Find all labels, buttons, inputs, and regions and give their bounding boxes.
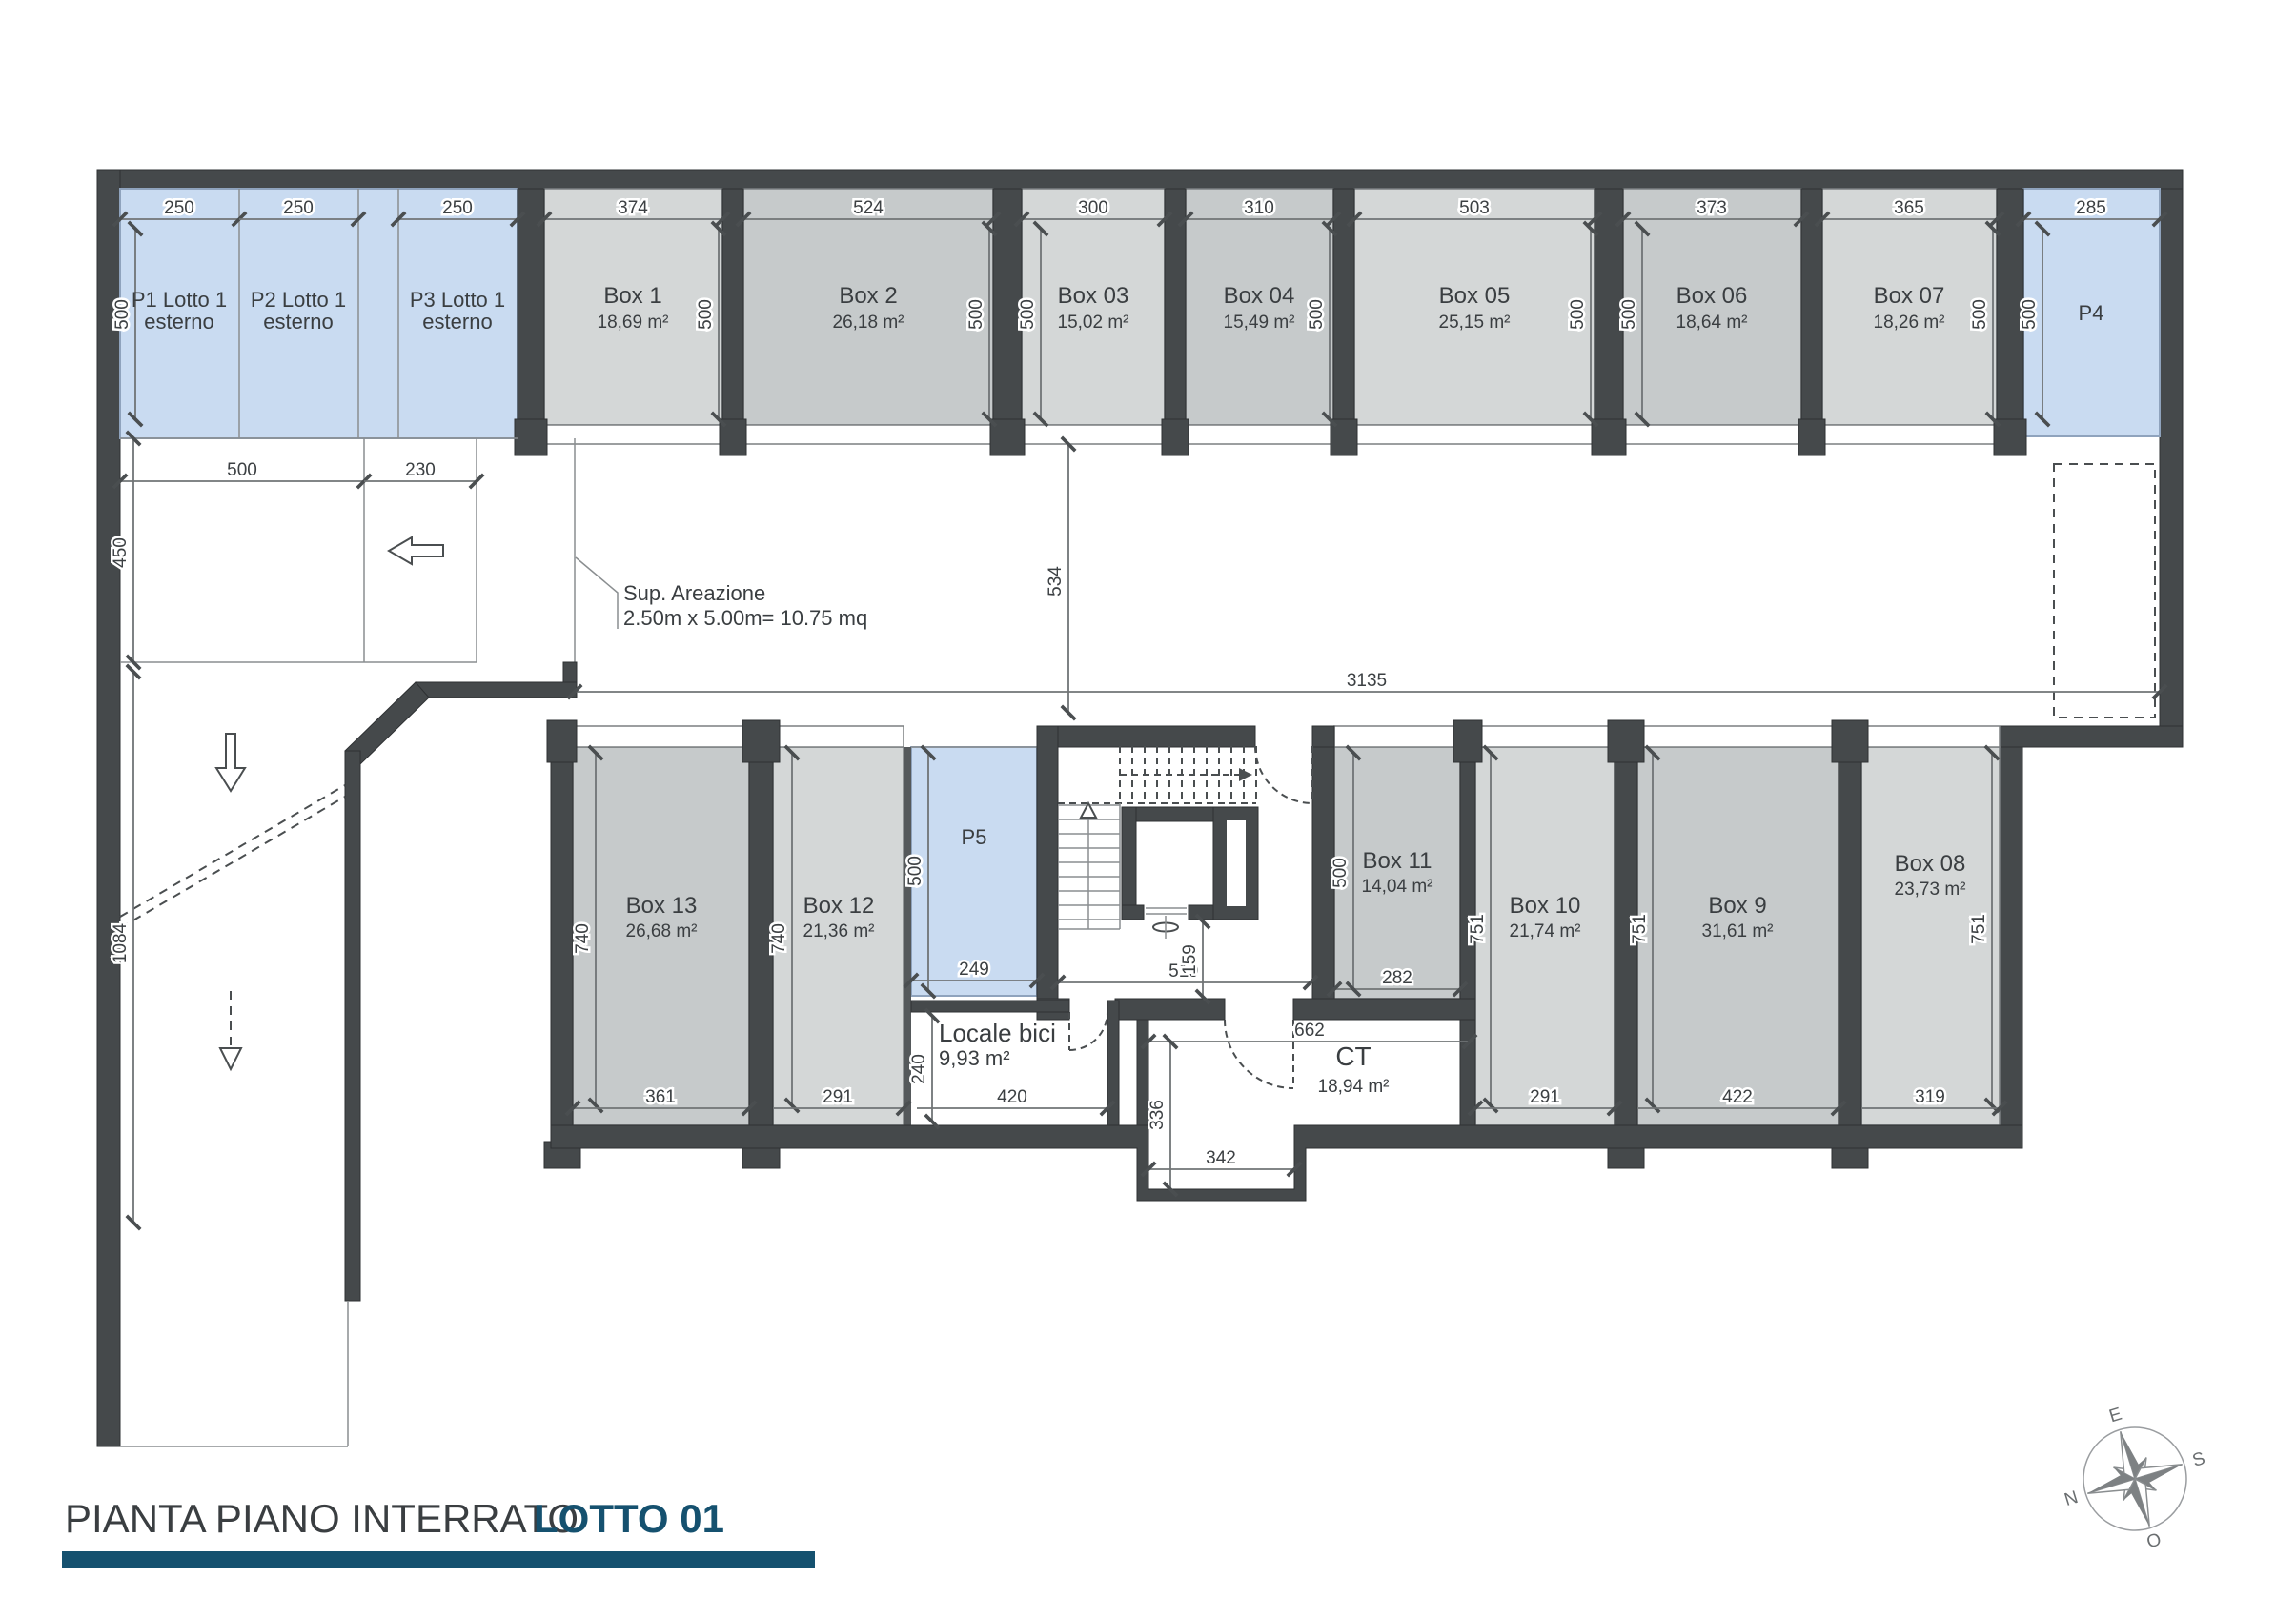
dim-1084: 1084 — [111, 922, 131, 963]
p2-sublabel: esterno — [263, 310, 333, 334]
dim-depth-500: 500 — [1018, 299, 1038, 330]
dim-depth-500: 500 — [1619, 299, 1639, 330]
plan-title: PIANTA PIANO INTERRATO — [65, 1496, 579, 1541]
box12-name: Box 12 — [803, 893, 875, 919]
dim-box07-width: 365 — [1894, 198, 1924, 218]
p4-label: P4 — [2079, 301, 2104, 325]
ventilation-note-line2: 2.50m x 5.00m= 10.75 mq — [623, 606, 867, 630]
ct-room-area: 18,94 m² — [1318, 1077, 1390, 1097]
dim-534: 534 — [1046, 566, 1066, 597]
dim-box13-width: 361 — [645, 1087, 676, 1107]
box08-name: Box 08 — [1895, 851, 1966, 877]
dim-p1-width: 250 — [164, 198, 194, 218]
dim-500: 500 — [227, 460, 257, 480]
dim-p2-width: 250 — [283, 198, 314, 218]
box07-area: 18,26 m² — [1874, 313, 1945, 333]
dim-depth-500: 500 — [1970, 299, 1990, 330]
p5-label: P5 — [962, 825, 987, 849]
dim-box9-width: 422 — [1722, 1087, 1753, 1107]
box12-area: 21,36 m² — [803, 921, 875, 941]
dim-p5-depth: 500 — [905, 856, 925, 886]
dim-box08-depth: 751 — [1969, 914, 1989, 944]
dim-depth-500: 500 — [696, 299, 716, 330]
dim-box11-depth: 500 — [1331, 858, 1351, 888]
dim-box1-width: 374 — [618, 198, 648, 218]
title-underline — [62, 1551, 815, 1568]
dim-p3-width: 250 — [442, 198, 473, 218]
dim-depth-500: 500 — [1568, 299, 1588, 330]
box11-area: 14,04 m² — [1362, 877, 1433, 897]
dim-box03-width: 300 — [1078, 198, 1108, 218]
p1-sublabel: esterno — [144, 310, 213, 334]
box2-name: Box 2 — [839, 283, 897, 309]
dim-box11-width: 282 — [1382, 968, 1412, 988]
dim-depth-500: 500 — [112, 299, 132, 330]
box2-area: 26,18 m² — [833, 313, 904, 333]
dim-depth-500: 500 — [2020, 299, 2040, 330]
box10-name: Box 10 — [1510, 893, 1581, 919]
box11-name: Box 11 — [1363, 848, 1432, 874]
dim-box12-depth: 740 — [769, 923, 789, 954]
p2-label: P2 Lotto 1 — [251, 288, 346, 312]
dim-230: 230 — [405, 460, 436, 480]
box03-area: 15,02 m² — [1058, 313, 1129, 333]
dim-depth-500: 500 — [1307, 299, 1327, 330]
dim-box13-depth: 740 — [573, 923, 593, 954]
box13-area: 26,68 m² — [626, 921, 698, 941]
dim-box12-width: 291 — [823, 1087, 853, 1107]
dim-box2-width: 524 — [853, 198, 884, 218]
dim-depth-500: 500 — [966, 299, 986, 330]
box13-name: Box 13 — [626, 893, 698, 919]
dim-342: 342 — [1206, 1148, 1236, 1168]
p3-sublabel: esterno — [422, 310, 492, 334]
dim-box10-depth: 751 — [1468, 914, 1488, 944]
dim-box06-width: 373 — [1697, 198, 1727, 218]
dim-box05-width: 503 — [1459, 198, 1490, 218]
box05-name: Box 05 — [1439, 283, 1511, 309]
dim-ct-width: 662 — [1294, 1021, 1325, 1041]
floor-plan-canvas: 250 250 250 374 524 300 310 503 373 365 … — [0, 0, 2296, 1618]
dim-box04-width: 310 — [1244, 198, 1274, 218]
ventilation-note-line1: Sup. Areazione — [623, 581, 765, 605]
bike-room-area: 9,93 m² — [939, 1046, 1010, 1070]
dim-450: 450 — [111, 537, 131, 568]
dim-box9-depth: 751 — [1630, 914, 1650, 944]
box06-name: Box 06 — [1676, 283, 1748, 309]
box9-name: Box 9 — [1708, 893, 1766, 919]
box08-area: 23,73 m² — [1895, 880, 1966, 900]
p1-label: P1 Lotto 1 — [132, 288, 227, 312]
dim-336: 336 — [1148, 1100, 1168, 1130]
ct-room-name: CT — [1335, 1042, 1371, 1071]
box06-area: 18,64 m² — [1676, 313, 1748, 333]
box03-name: Box 03 — [1058, 283, 1129, 309]
p3-label: P3 Lotto 1 — [410, 288, 505, 312]
box07-name: Box 07 — [1874, 283, 1945, 309]
box9-area: 31,61 m² — [1702, 921, 1774, 941]
dim-3135: 3135 — [1347, 671, 1387, 691]
dim-p5-width: 249 — [959, 960, 989, 980]
dim-box10-width: 291 — [1530, 1087, 1560, 1107]
dim-p4-width: 285 — [2076, 198, 2106, 218]
dim-box08-width: 319 — [1915, 1087, 1945, 1107]
dim-bike-depth: 240 — [909, 1054, 929, 1084]
box05-area: 25,15 m² — [1439, 313, 1511, 333]
box04-area: 15,49 m² — [1224, 313, 1295, 333]
box1-area: 18,69 m² — [598, 313, 669, 333]
bike-room-name: Locale bici — [939, 1019, 1056, 1047]
title-block: PIANTA PIANO INTERRATO LOTTO 01 — [62, 1496, 815, 1568]
dim-bike-width: 420 — [997, 1087, 1027, 1107]
parking-p5-area — [911, 747, 1037, 996]
box04-name: Box 04 — [1224, 283, 1295, 309]
lot-title: LOTTO 01 — [534, 1496, 724, 1541]
box1-name: Box 1 — [603, 283, 661, 309]
box10-area: 21,74 m² — [1510, 921, 1581, 941]
dim-159: 159 — [1180, 944, 1200, 975]
